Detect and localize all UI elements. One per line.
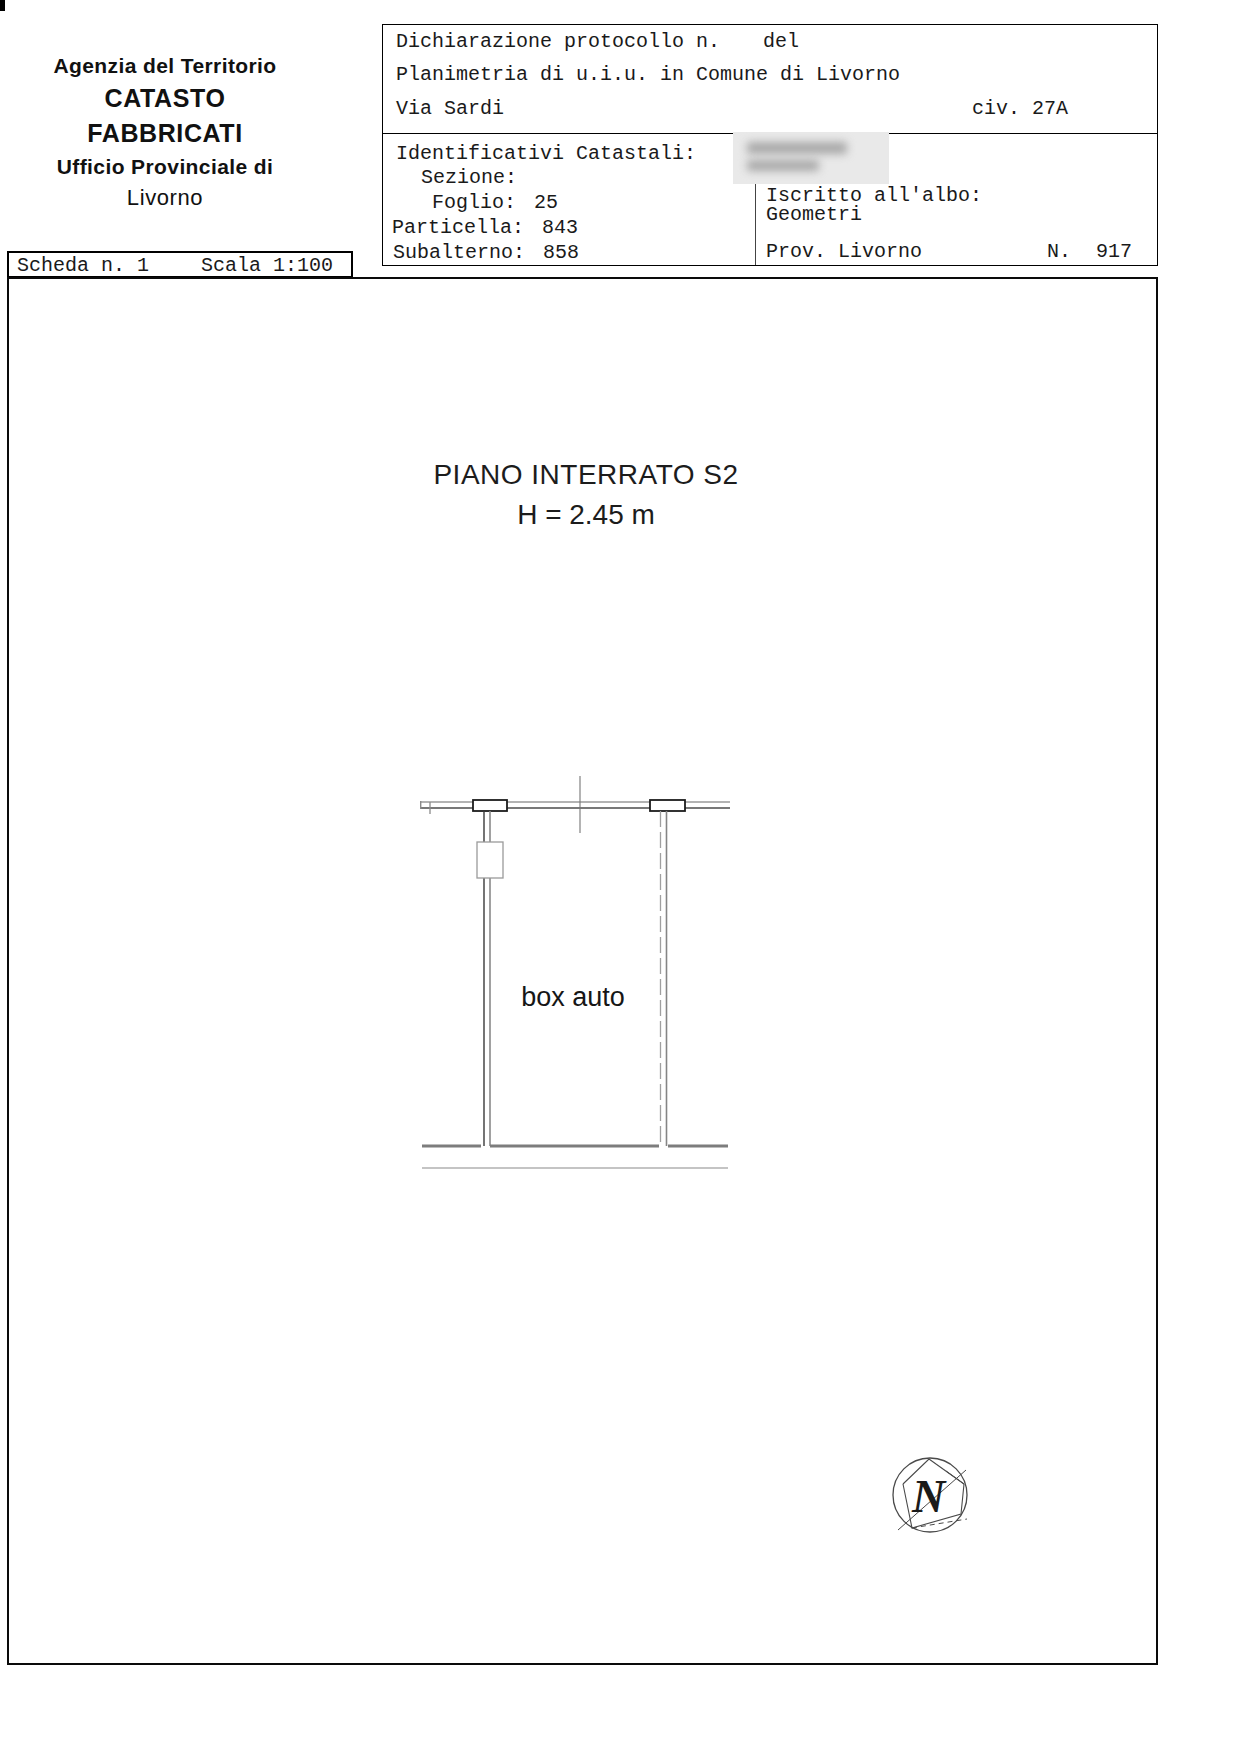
cadastral-plan-page: Agenzia del Territorio CATASTO FABBRICAT… (0, 0, 1240, 1754)
foglio-label: Foglio: (432, 191, 516, 214)
floor-title-block: PIANO INTERRATO S2 H = 2.45 m (430, 460, 742, 530)
scan-corner-artifact (0, 0, 5, 11)
subalterno-row: Subalterno: 858 (393, 242, 579, 264)
room-label: box auto (503, 982, 643, 1013)
street-name: Via Sardi (396, 98, 504, 120)
provincial-office-label: Ufficio Provinciale di (26, 151, 304, 182)
register-number-value: 917 (1096, 241, 1132, 263)
particella-label: Particella: (392, 216, 524, 239)
foglio-row: Foglio: 25 (432, 192, 558, 214)
planimetria-line: Planimetria di u.i.u. in Comune di Livor… (396, 64, 900, 86)
province-name: Livorno (26, 182, 304, 213)
sheet-number: Scheda n. 1 (17, 255, 149, 277)
agency-header: Agenzia del Territorio CATASTO FABBRICAT… (26, 50, 304, 213)
floor-title: PIANO INTERRATO S2 (430, 460, 742, 490)
albo-value: Geometri (766, 204, 862, 226)
cadastre-title: CATASTO FABBRICATI (26, 81, 304, 151)
scale-value: Scala 1:100 (201, 255, 333, 277)
particella-row: Particella: 843 (392, 217, 578, 239)
declaration-box: Dichiarazione protocollo n. del Planimet… (382, 24, 1158, 266)
agency-name: Agenzia del Territorio (26, 50, 304, 81)
sezione-row: Sezione: (421, 167, 517, 189)
civic-number: civ. 27A (972, 98, 1068, 120)
subalterno-value: 858 (543, 241, 579, 264)
floor-height: H = 2.45 m (430, 500, 742, 530)
subalterno-label: Subalterno: (393, 241, 525, 264)
particella-value: 843 (542, 216, 578, 239)
register-number-label: N. (1047, 241, 1071, 263)
redacted-name-block (733, 132, 889, 184)
protocol-date-label: del (763, 31, 799, 53)
prov-value: Prov. Livorno (766, 241, 922, 263)
identifiers-title: Identificativi Catastali: (396, 143, 696, 165)
sheet-scale-box: Scheda n. 1 Scala 1:100 (7, 251, 353, 278)
protocol-label: Dichiarazione protocollo n. (396, 31, 720, 53)
foglio-value: 25 (534, 191, 558, 214)
